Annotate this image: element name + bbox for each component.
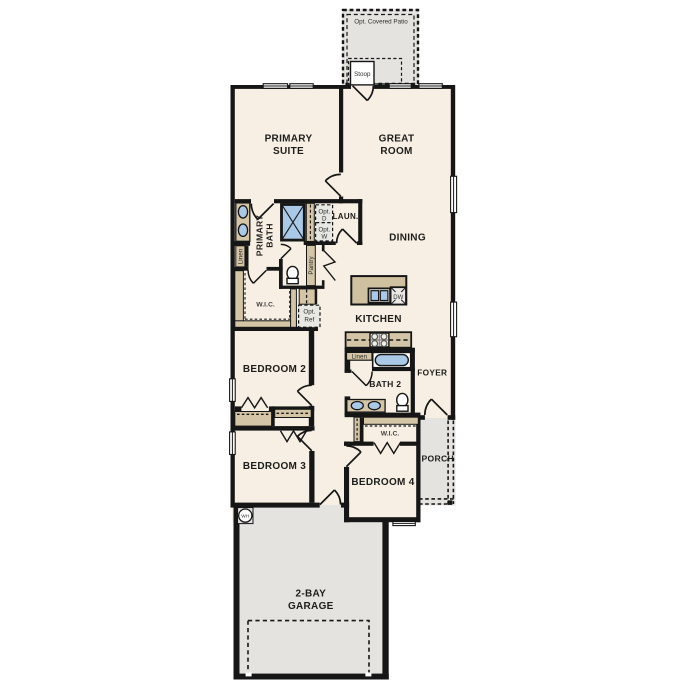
svg-text:D: D [322, 216, 327, 223]
svg-text:BATH: BATH [265, 223, 275, 247]
svg-text:Pantry: Pantry [308, 256, 315, 275]
svg-text:Linen: Linen [352, 353, 368, 360]
svg-text:PORCH: PORCH [422, 454, 455, 464]
svg-text:FOYER: FOYER [417, 368, 447, 378]
svg-text:Opt.: Opt. [303, 309, 315, 316]
svg-text:Opt.: Opt. [318, 227, 330, 234]
svg-text:W.I.C.: W.I.C. [256, 302, 275, 309]
svg-text:Ref: Ref [304, 317, 314, 324]
svg-text:BEDROOM 2: BEDROOM 2 [243, 364, 306, 375]
svg-text:W: W [321, 234, 327, 241]
svg-text:WH: WH [241, 514, 250, 520]
svg-text:Linen: Linen [237, 248, 244, 264]
svg-text:2-BAY: 2-BAY [296, 589, 327, 600]
svg-text:KITCHEN: KITCHEN [355, 314, 402, 325]
svg-text:W.I.C.: W.I.C. [381, 431, 400, 438]
svg-text:BATH 2: BATH 2 [369, 379, 401, 389]
svg-text:BEDROOM 4: BEDROOM 4 [351, 477, 414, 488]
svg-text:SUITE: SUITE [273, 146, 304, 157]
svg-text:ROOM: ROOM [380, 146, 412, 157]
svg-text:DW: DW [393, 295, 403, 301]
svg-text:GREAT: GREAT [379, 134, 415, 145]
svg-text:GARAGE: GARAGE [288, 601, 334, 612]
svg-text:DINING: DINING [389, 233, 426, 244]
svg-text:LAUN.: LAUN. [333, 212, 359, 221]
svg-text:Opt. Covered Patio: Opt. Covered Patio [354, 19, 408, 26]
svg-text:Opt.: Opt. [318, 209, 330, 216]
svg-text:BEDROOM 3: BEDROOM 3 [243, 461, 306, 472]
svg-text:PRIMARY: PRIMARY [255, 215, 265, 256]
svg-text:PRIMARY: PRIMARY [265, 134, 313, 145]
svg-text:Stoop: Stoop [354, 71, 371, 78]
